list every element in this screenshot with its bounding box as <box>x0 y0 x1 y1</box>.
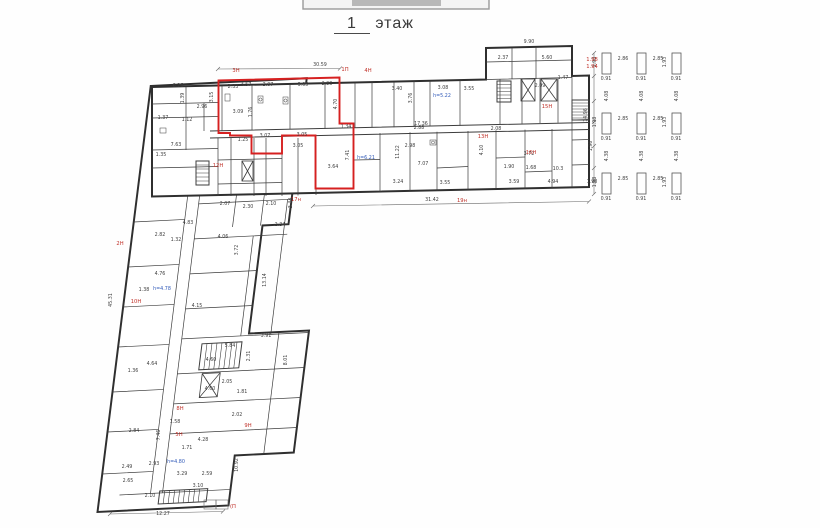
dimension-label: 4.60 <box>205 386 216 392</box>
dimension-label: 1.35 <box>156 152 167 158</box>
dimension-label: 7.46 <box>156 430 162 441</box>
dimension-label: 3.64 <box>328 164 339 170</box>
dimension-label: 1.71 <box>182 445 193 451</box>
dimension-label: 1.47 <box>558 75 569 81</box>
dimension-label: 2.49 <box>122 464 133 470</box>
dimension-label: 1.58 <box>170 419 181 425</box>
zone-label: 1.98 <box>586 57 598 63</box>
dimension-label: 1.36 <box>128 368 139 374</box>
dimension-label: 3.05 <box>293 143 304 149</box>
dimension-label: 0.91 <box>636 196 647 202</box>
dimension-label: 0.91 <box>671 196 682 202</box>
dimension-label: 30.59 <box>313 62 327 68</box>
dimension-label: 2.31 <box>246 351 252 362</box>
dimension-label: 3.07 <box>260 133 271 139</box>
dimension-label: 10.92 <box>234 458 240 472</box>
dimension-label: 1.12 <box>182 117 193 123</box>
dimension-label: 1.90 <box>504 164 515 170</box>
dimension-label: 3.55 <box>440 180 451 186</box>
dimension-label: 12.27 <box>156 511 170 517</box>
dimension-label: 10.3 <box>553 166 564 172</box>
dimension-label: 4.76 <box>155 271 166 277</box>
dimension-label: 3.55 <box>464 86 475 92</box>
dimension-label: 2.84 <box>129 428 140 434</box>
zone-label: 2H <box>116 241 123 247</box>
dimension-label: 13.14 <box>262 273 268 287</box>
dimension-label: 1.93 <box>662 117 668 128</box>
dimension-label: 3.57 <box>241 82 252 88</box>
dimension-label: 1.37 <box>158 115 169 121</box>
zone-label: 1П <box>341 67 348 73</box>
dimension-label: 5.84 <box>225 343 236 349</box>
dimension-label: 2.93 <box>149 461 160 467</box>
floorplan-page: 1 этаж <box>0 0 820 528</box>
dimension-label: 2.10 <box>266 201 277 207</box>
dimension-label: 0.91 <box>601 76 612 82</box>
dimension-label: 8.01 <box>283 355 289 366</box>
dimension-label: 2.85 <box>653 176 664 182</box>
dimension-label: 2.98 <box>405 143 416 149</box>
dimension-label: 1.39 <box>180 93 186 104</box>
dimension-label: 4.64 <box>147 361 158 367</box>
zone-label: 17н <box>291 197 301 203</box>
dimension-label: 3.40 <box>392 86 403 92</box>
dimension-label: 7.63 <box>171 142 182 148</box>
dimension-label: 0.91 <box>671 136 682 142</box>
zone-label: 5H <box>175 432 182 438</box>
dimension-label: 3.91 <box>261 333 272 339</box>
dimension-label: 4.38 <box>604 151 610 162</box>
ceiling-height-label: h=4.78 <box>153 286 171 292</box>
dimension-label: 1.38 <box>139 287 150 293</box>
dimension-label: 2.34 <box>275 222 286 228</box>
dimension-label: 2.07 <box>220 201 231 207</box>
dimension-label: 7.41 <box>345 150 351 161</box>
dimension-label: 4.28 <box>198 437 209 443</box>
dimension-label: 4.08 <box>604 91 610 102</box>
dimension-label: 5.60 <box>542 55 553 61</box>
dimension-label: 1.76 <box>248 107 254 118</box>
dimension-label: 1.98 <box>592 177 598 188</box>
dimension-label: 1.93 <box>662 177 668 188</box>
dimension-label: 4.08 <box>639 91 645 102</box>
dimension-label: 31.42 <box>425 197 439 203</box>
zone-label: 15H <box>542 104 553 110</box>
dimension-label: 2.85 <box>653 116 664 122</box>
dimension-label: 7.07 <box>418 161 429 167</box>
dimension-label: 0.91 <box>636 76 647 82</box>
dimension-label: 2.23 <box>322 81 333 87</box>
dimension-label: 3.09 <box>233 109 244 115</box>
dimension-label: 3.76 <box>408 93 414 104</box>
floor-plan-canvas: 30.599.906.263.573.073.052.232.333.151.3… <box>0 0 820 528</box>
zone-label: 9H <box>244 423 251 429</box>
ceiling-height-label: h=4.80 <box>167 459 185 465</box>
dimension-label: 2.85 <box>653 56 664 62</box>
dimension-label: 2.02 <box>232 412 243 418</box>
dimension-label: 2.33 <box>228 84 239 90</box>
dimension-label: 4.70 <box>333 99 339 110</box>
dimension-label: 1.81 <box>237 389 248 395</box>
zone-label: 16H <box>526 150 537 156</box>
dimension-label: 4.08 <box>674 91 680 102</box>
dimension-label: 2.10 <box>145 493 156 499</box>
dimension-label: 3.08 <box>438 85 449 91</box>
dimension-label: 2.96 <box>197 104 208 110</box>
dimension-label: 3.10 <box>193 483 204 489</box>
dimension-label: 14.96 <box>583 108 589 122</box>
dimension-label: 3.72 <box>234 245 240 256</box>
zone-label: 13H <box>478 134 489 140</box>
zone-label: 19н <box>457 198 467 204</box>
dimension-label: 2.08 <box>491 126 502 132</box>
dimension-label: 4.60 <box>206 357 217 363</box>
dimension-label: 2.86 <box>618 56 629 62</box>
dimension-label: 4.15 <box>192 303 203 309</box>
dimension-label: 2.85 <box>618 176 629 182</box>
title-block-fragment <box>303 0 489 9</box>
dimension-label: 3.29 <box>177 471 188 477</box>
dimension-label: 2.85 <box>618 116 629 122</box>
zone-label: 8H <box>176 406 183 412</box>
ceiling-height-label: h=6.21 <box>357 155 375 161</box>
dimension-label: 1.98 <box>592 117 598 128</box>
dimension-label: 0.91 <box>601 136 612 142</box>
dimension-label: 4.83 <box>183 220 194 226</box>
dimension-label: 2.37 <box>498 55 509 61</box>
dimension-label: 4.38 <box>674 151 680 162</box>
dimension-label: 2.05 <box>222 379 233 385</box>
dimension-label: 2.82 <box>155 232 166 238</box>
dimension-label: 4.94 <box>548 179 559 185</box>
zone-label: 12H <box>213 163 224 169</box>
dimension-label: 2.30 <box>243 204 254 210</box>
dimension-label: 0.91 <box>636 136 647 142</box>
dimension-label: 1.34 <box>341 124 352 130</box>
dimension-label: 1.96 <box>588 141 594 152</box>
dimension-label: 2.59 <box>202 471 213 477</box>
dimension-label: 2.88 <box>414 125 425 131</box>
dimension-label: 1.93 <box>662 57 668 68</box>
dimension-label: 1.68 <box>526 165 537 171</box>
zone-label: 4H <box>364 68 371 74</box>
dimension-label: 45.31 <box>108 293 114 307</box>
dimension-label: 1.25 <box>238 137 249 143</box>
dimension-label: 3.15 <box>209 92 215 103</box>
dimension-label: 0.91 <box>601 196 612 202</box>
dimension-label: 2.09 <box>535 83 546 89</box>
dimension-label: 3.05 <box>297 132 308 138</box>
dimension-label: 9.90 <box>524 39 535 45</box>
dimension-label: 2.65 <box>123 478 134 484</box>
zone-label: (П <box>230 504 236 510</box>
dimension-label: 4.10 <box>479 145 485 156</box>
zone-label: 1.94 <box>586 64 598 70</box>
dimension-label: 3.07 <box>263 82 274 88</box>
dimension-label: 6.26 <box>173 83 184 89</box>
dimension-label: 1.32 <box>171 237 182 243</box>
zone-label: 10H <box>131 299 142 305</box>
dimension-label: 3.05 <box>298 82 309 88</box>
ceiling-height-label: h=5.22 <box>433 93 451 99</box>
dimension-label: 4.38 <box>639 151 645 162</box>
zone-label: 3H <box>232 68 239 74</box>
dimension-label: 4.06 <box>218 234 229 240</box>
dimension-label: 3.59 <box>509 179 520 185</box>
exterior-section-grid <box>602 53 681 194</box>
dimension-label: 0.91 <box>671 76 682 82</box>
dimension-label: 3.24 <box>393 179 404 185</box>
dimension-label: 11.22 <box>395 145 401 159</box>
